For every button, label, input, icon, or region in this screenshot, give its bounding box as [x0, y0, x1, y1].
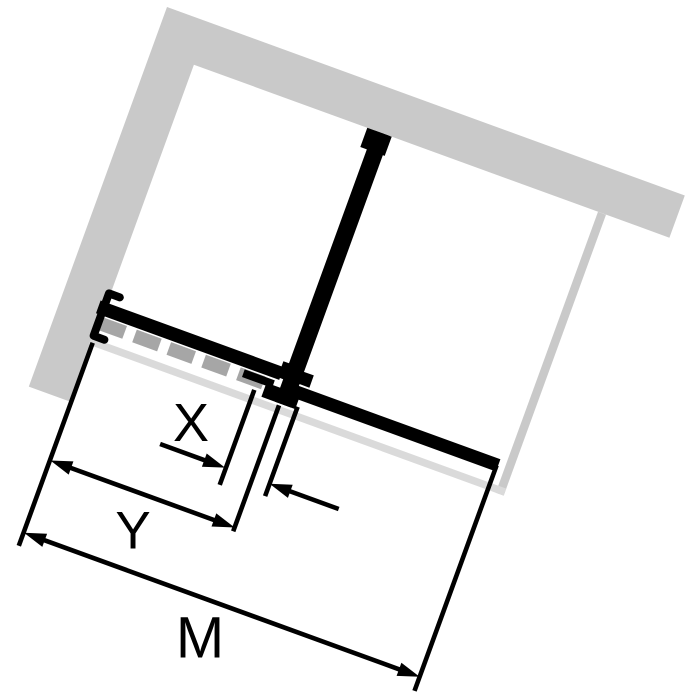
- svg-text:Y: Y: [115, 502, 150, 561]
- svg-text:X: X: [173, 393, 209, 453]
- svg-text:M: M: [176, 606, 224, 671]
